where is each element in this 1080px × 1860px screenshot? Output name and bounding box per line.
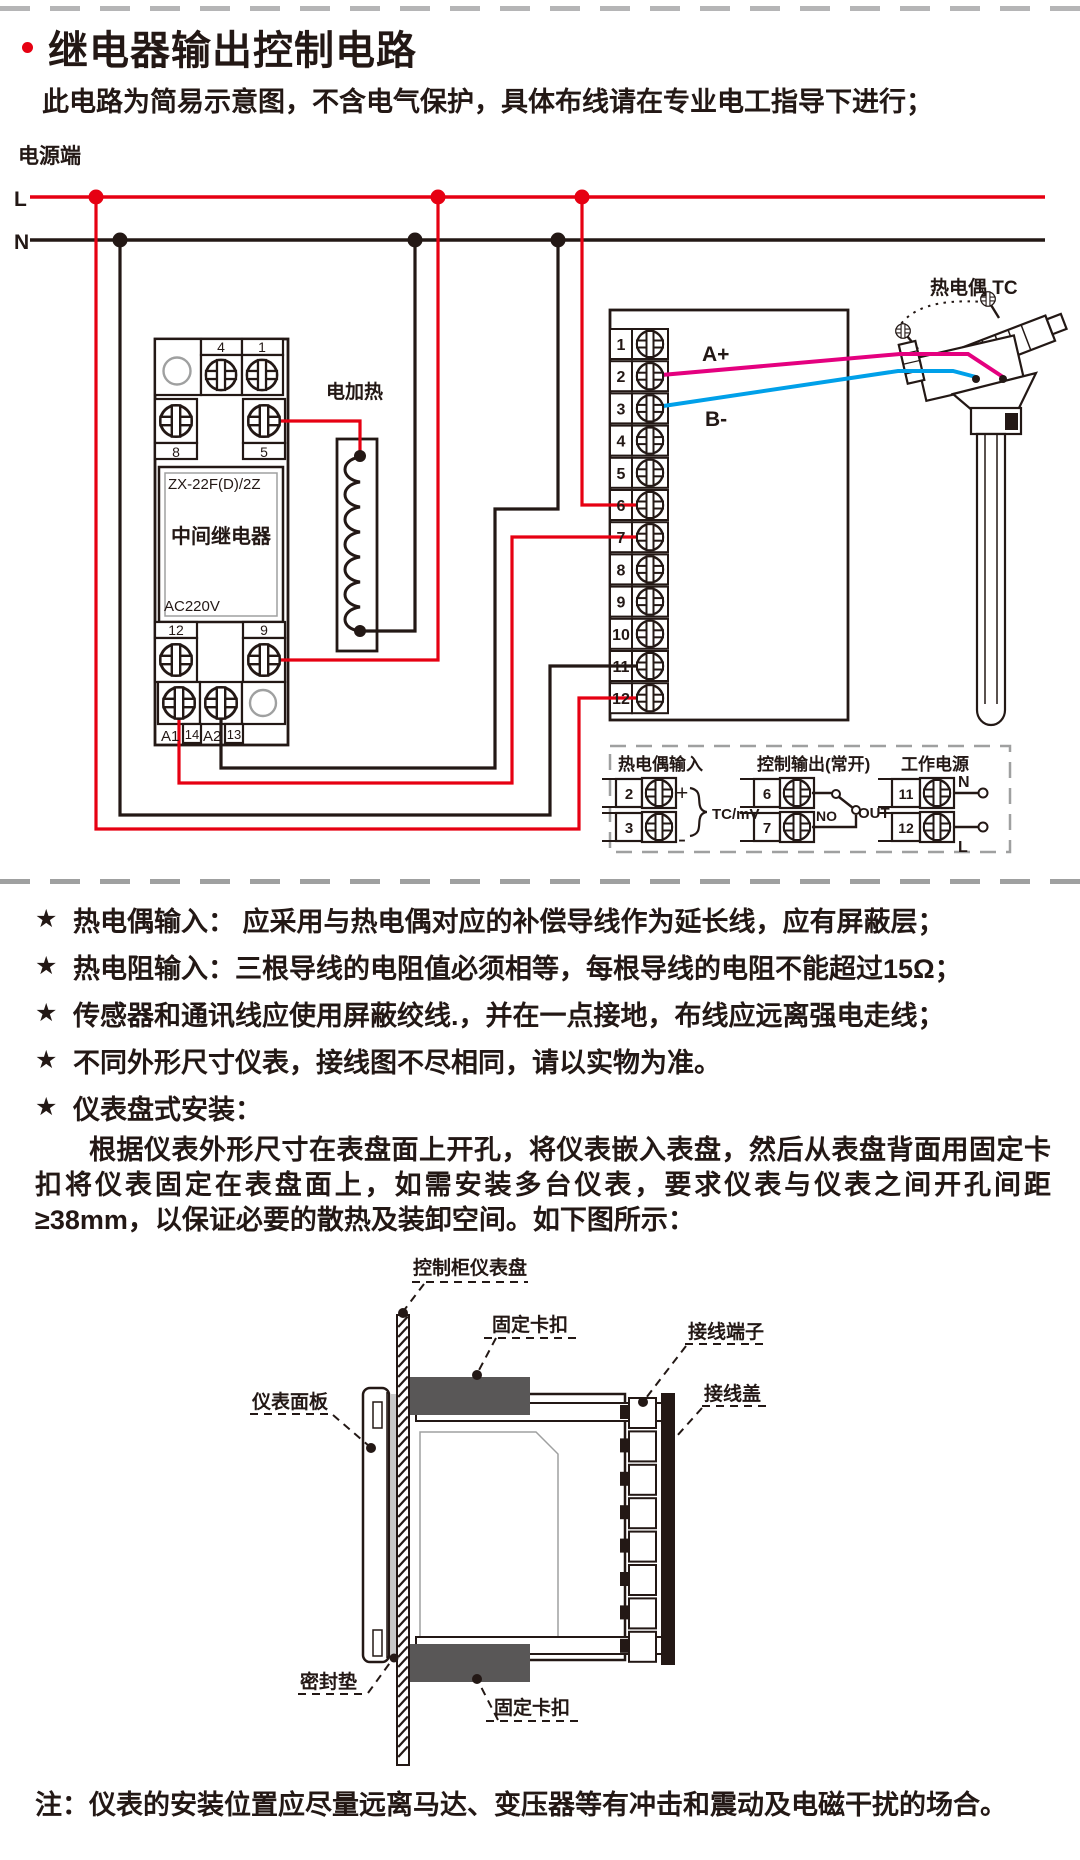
relay-t4: 4 xyxy=(217,339,225,355)
tc-probe xyxy=(977,434,1005,725)
relay-model: ZX-22F(D)/2Z xyxy=(168,476,261,493)
relay-t9: 9 xyxy=(260,622,268,638)
thermocouple xyxy=(896,292,1069,725)
star-bullet-icon: ★ xyxy=(35,951,73,981)
legend-l: L xyxy=(958,839,968,856)
instrument-case xyxy=(420,1432,558,1648)
svg-text:8: 8 xyxy=(617,562,626,579)
clip-bottom-label: 固定卡扣 xyxy=(494,1696,570,1719)
star-bullet-icon: ★ xyxy=(35,1045,73,1075)
terminal-cover-bar xyxy=(661,1393,675,1665)
legend-n: N xyxy=(958,774,970,791)
legend-plus: + xyxy=(676,782,688,805)
section-dashed-divider xyxy=(0,879,1080,884)
svg-text:9: 9 xyxy=(617,595,626,612)
legend-tc-title: 热电偶输入 xyxy=(618,754,703,774)
legend-out: OUT xyxy=(858,805,890,822)
fixing-clip-bottom xyxy=(410,1644,530,1682)
legend-ctrl-title: 控制输出(常开) xyxy=(757,754,870,774)
line-l-label: L xyxy=(14,188,27,211)
note-text: 仪表盘式安装： xyxy=(73,1088,262,1127)
note-text: 热电阻输入：三根导线的电阻值必须相等，每根导线的电阻不能超过15Ω； xyxy=(73,947,962,986)
manual-page: 继电器输出控制电路 此电路为简易示意图，不含电气保护，具体布线请在专业电工指导下… xyxy=(0,0,1080,1860)
front-panel xyxy=(363,1388,389,1662)
front-panel-label: 仪表面板 xyxy=(251,1390,329,1413)
fixing-clip-top xyxy=(410,1377,530,1415)
relay-a1: A1 xyxy=(161,728,179,745)
svg-text:11: 11 xyxy=(613,659,630,676)
panel-label: 控制柜仪表盘 xyxy=(413,1256,527,1279)
relay-circuit-diagram: 电源端 L N 电加热 热电偶 TC 4 1 8 5 ZX-22F(D)/2Z … xyxy=(0,130,1080,875)
install-paragraph: 根据仪表外形尺寸在表盘面上开孔，将仪表嵌入表盘，然后从表盘背面用固定卡扣将仪表固… xyxy=(35,1133,1051,1238)
relay-t1: 1 xyxy=(258,339,266,355)
legend-t2: 2 xyxy=(625,786,633,803)
legend-power-title: 工作电源 xyxy=(901,754,969,774)
svg-text:5: 5 xyxy=(617,466,626,483)
svg-text:10: 10 xyxy=(612,627,630,644)
terminal-block-label: 接线端子 xyxy=(688,1320,764,1343)
legend-t6: 6 xyxy=(763,786,771,803)
relay-a2: A2 xyxy=(203,728,221,745)
legend-minus: - xyxy=(678,826,686,853)
relay-t5: 5 xyxy=(260,444,268,460)
note-item: ★ 热电阻输入：三根导线的电阻值必须相等，每根导线的电阻不能超过15Ω； xyxy=(35,949,1055,983)
svg-text:7: 7 xyxy=(617,530,626,547)
legend-t12: 12 xyxy=(898,820,914,836)
legend-no: NO xyxy=(816,808,837,824)
terminal-cover-label: 接线盖 xyxy=(704,1382,761,1405)
red-bullet-icon xyxy=(22,42,33,53)
relay-name: 中间继电器 xyxy=(171,524,272,548)
wire-b-label: B- xyxy=(705,408,727,431)
legend-t11: 11 xyxy=(899,786,914,802)
wire-a-label: A+ xyxy=(702,343,729,366)
note-item: ★ 热电偶输入： 应采用与热电偶对应的补偿导线作为延长线，应有屏蔽层； xyxy=(35,902,1055,936)
svg-text:6: 6 xyxy=(617,498,626,515)
svg-text:12: 12 xyxy=(612,691,630,708)
subtitle: 此电路为简易示意图，不含电气保护，具体布线请在专业电工指导下进行； xyxy=(42,80,1072,119)
line-n-label: N xyxy=(14,231,29,254)
panel-mount-diagram: 控制柜仪表盘 固定卡扣 仪表面板 接线端子 接线盖 密封垫 固定卡扣 xyxy=(0,1250,1080,1780)
top-dashed-divider xyxy=(0,6,1080,11)
relay-13: 13 xyxy=(227,727,241,742)
svg-text:2: 2 xyxy=(617,369,626,386)
legend-tcmv: TC/mV xyxy=(712,806,760,823)
relay-voltage: AC220V xyxy=(164,598,220,615)
star-bullet-icon: ★ xyxy=(35,998,73,1028)
note-item: ★ 传感器和通讯线应使用屏蔽绞线.，并在一点接地，布线应远离强电走线； xyxy=(35,996,1055,1030)
thermocouple-label: 热电偶 TC xyxy=(930,276,1018,299)
note-text: 热电偶输入： 应采用与热电偶对应的补偿导线作为延长线，应有屏蔽层； xyxy=(73,900,945,939)
heater-outline xyxy=(337,439,377,651)
star-bullet-icon: ★ xyxy=(35,1092,73,1122)
svg-text:1: 1 xyxy=(617,337,626,354)
relay-t12: 12 xyxy=(168,622,184,638)
bottom-note: 注：仪表的安装位置应尽量远离马达、变压器等有冲击和震动及电磁干扰的场合。 xyxy=(35,1783,1065,1822)
heater-label: 电加热 xyxy=(326,380,383,403)
note-item: ★ 仪表盘式安装： xyxy=(35,1090,1055,1124)
legend-t3: 3 xyxy=(625,820,633,837)
clip-top-label: 固定卡扣 xyxy=(492,1313,568,1336)
star-bullet-icon: ★ xyxy=(35,904,73,934)
switch-contact-icon xyxy=(832,790,840,798)
tc-dotted-wire-arc xyxy=(897,301,983,330)
gasket-label: 密封垫 xyxy=(300,1670,357,1693)
page-title: 继电器输出控制电路 xyxy=(48,18,417,76)
svg-text:3: 3 xyxy=(617,401,626,418)
svg-text:4: 4 xyxy=(617,434,626,451)
tc-nut xyxy=(899,341,925,384)
note-item: ★ 不同外形尺寸仪表，接线图不尽相同，请以实物为准。 xyxy=(35,1043,1055,1077)
note-text: 不同外形尺寸仪表，接线图不尽相同，请以实物为准。 xyxy=(73,1041,721,1080)
relay-t8: 8 xyxy=(172,444,180,460)
note-text: 传感器和通讯线应使用屏蔽绞线.，并在一点接地，布线应远离强电走线； xyxy=(73,994,945,1033)
section-header: 继电器输出控制电路 xyxy=(22,18,417,76)
relay-14: 14 xyxy=(185,727,199,742)
legend-t7: 7 xyxy=(763,820,771,837)
power-side-label: 电源端 xyxy=(18,145,81,168)
